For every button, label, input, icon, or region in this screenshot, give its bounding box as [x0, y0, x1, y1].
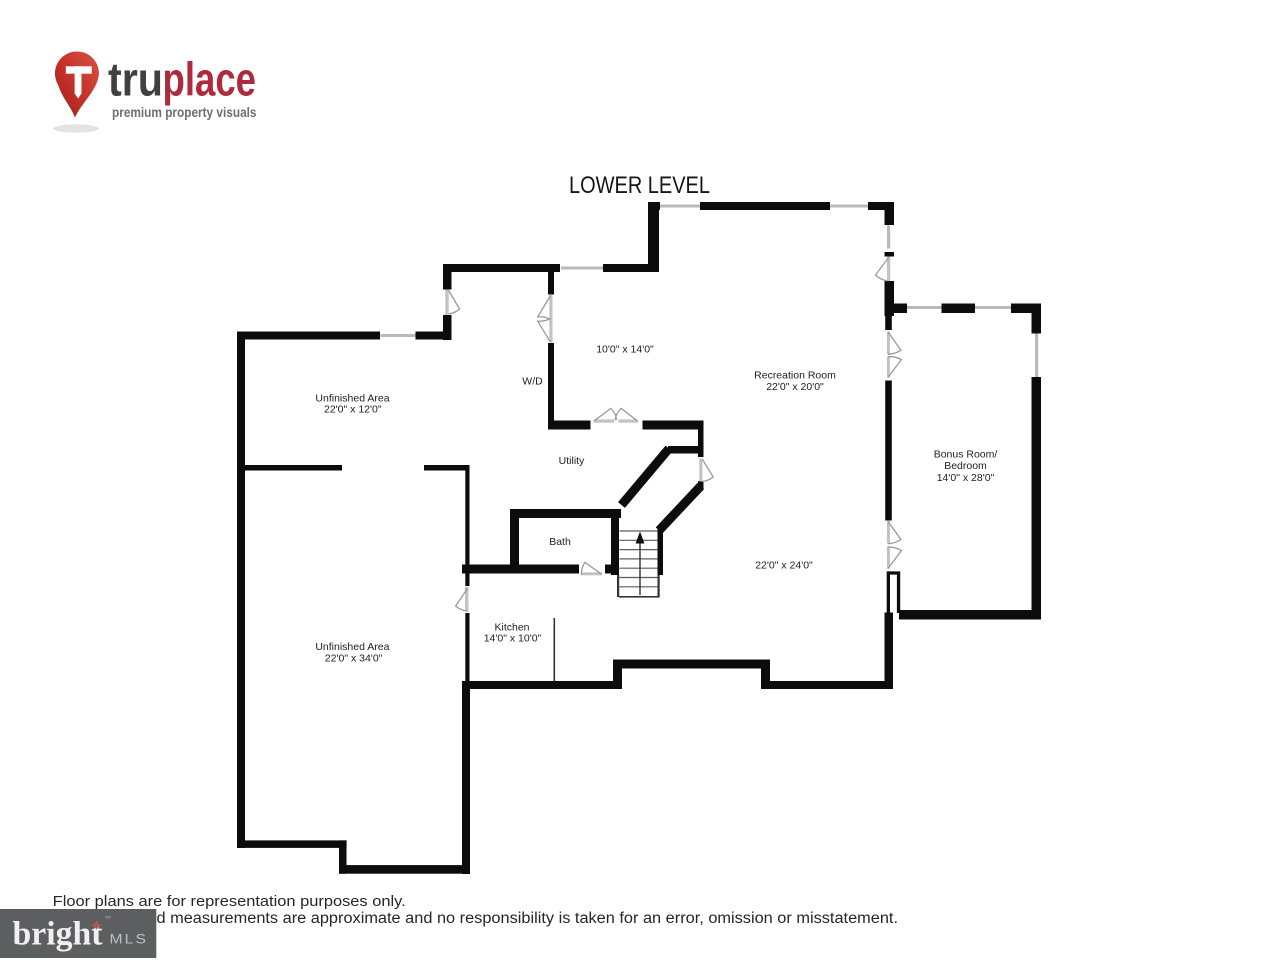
svg-text:W/D: W/D	[522, 376, 543, 388]
svg-text:premium property visuals: premium property visuals	[112, 104, 257, 120]
svg-text:tru: tru	[108, 53, 163, 106]
svg-text:Bonus Room/: Bonus Room/	[934, 448, 998, 460]
svg-text:14'0" x 10'0": 14'0" x 10'0"	[484, 633, 542, 645]
svg-text:™: ™	[105, 916, 112, 923]
svg-text:place: place	[163, 53, 257, 106]
svg-text:22'0" x 24'0": 22'0" x 24'0"	[755, 560, 813, 572]
svg-text:Bath: Bath	[549, 536, 571, 548]
svg-text:22'0" x 12'0": 22'0" x 12'0"	[324, 403, 382, 415]
svg-text:bright: bright	[13, 916, 104, 953]
svg-text:Floor plans are for representa: Floor plans are for representation purpo…	[53, 893, 406, 910]
svg-text:MLS: MLS	[110, 932, 149, 947]
svg-text:All dimensions and measurement: All dimensions and measurements are appr…	[29, 910, 899, 927]
svg-text:Bedroom: Bedroom	[944, 460, 987, 472]
svg-text:22'0" x 20'0": 22'0" x 20'0"	[766, 381, 824, 393]
svg-text:Unfinished Area: Unfinished Area	[315, 641, 389, 653]
svg-text:LOWER LEVEL: LOWER LEVEL	[569, 172, 710, 199]
svg-text:Recreation Room: Recreation Room	[754, 369, 836, 381]
svg-text:14'0" x 28'0": 14'0" x 28'0"	[937, 472, 995, 484]
svg-text:Utility: Utility	[559, 455, 585, 467]
svg-text:10'0" x 14'0": 10'0" x 14'0"	[596, 344, 654, 356]
svg-text:22'0" x 34'0": 22'0" x 34'0"	[325, 653, 383, 665]
